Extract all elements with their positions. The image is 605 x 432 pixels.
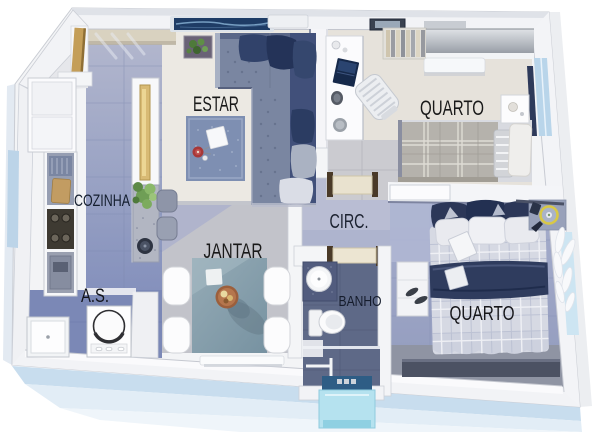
svg-text:JANTAR: JANTAR — [204, 240, 263, 263]
svg-text:CIRC.: CIRC. — [330, 211, 369, 233]
svg-text:A.S.: A.S. — [81, 286, 109, 307]
svg-text:QUARTO: QUARTO — [420, 97, 484, 120]
svg-text:BANHO: BANHO — [339, 293, 382, 310]
svg-text:QUARTO: QUARTO — [450, 303, 515, 325]
svg-text:ESTAR: ESTAR — [193, 93, 239, 116]
svg-text:COZINHA: COZINHA — [74, 191, 130, 210]
